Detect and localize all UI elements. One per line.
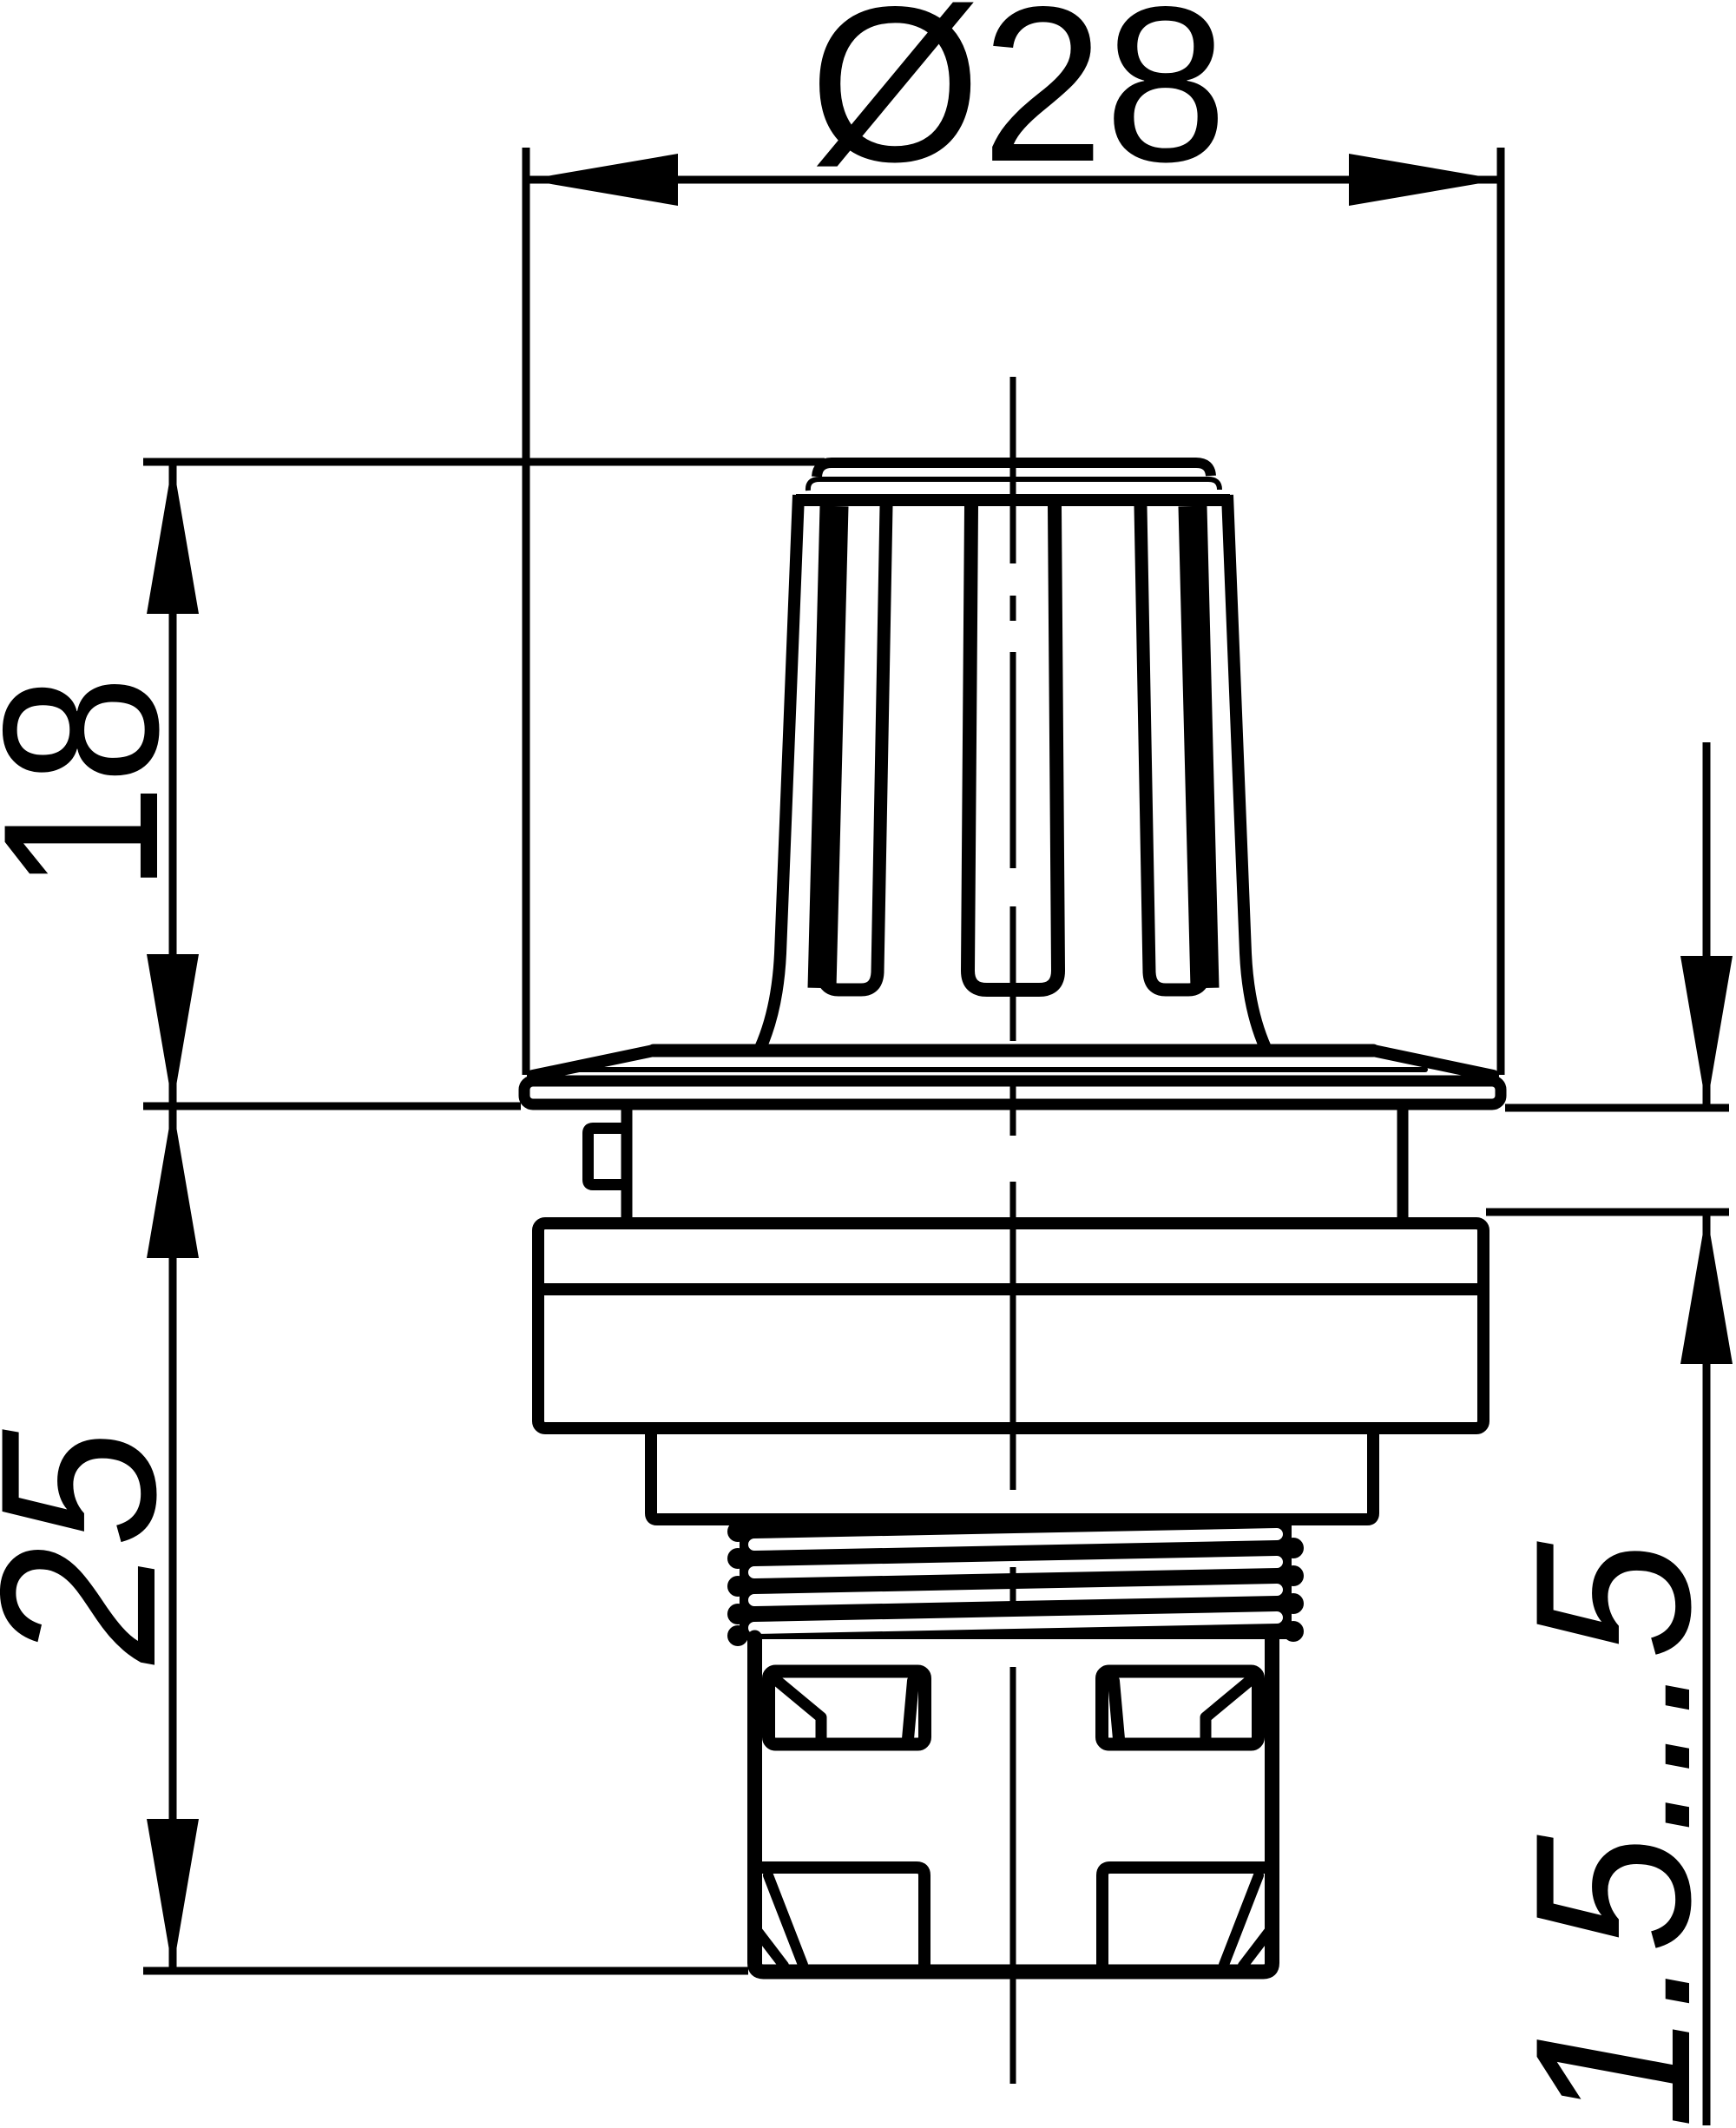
svg-text:18: 18: [0, 675, 204, 893]
svg-text:1.5...5: 1.5...5: [1489, 1541, 1736, 2128]
svg-text:Ø28: Ø28: [809, 0, 1227, 208]
svg-text:25: 25: [0, 1429, 201, 1665]
